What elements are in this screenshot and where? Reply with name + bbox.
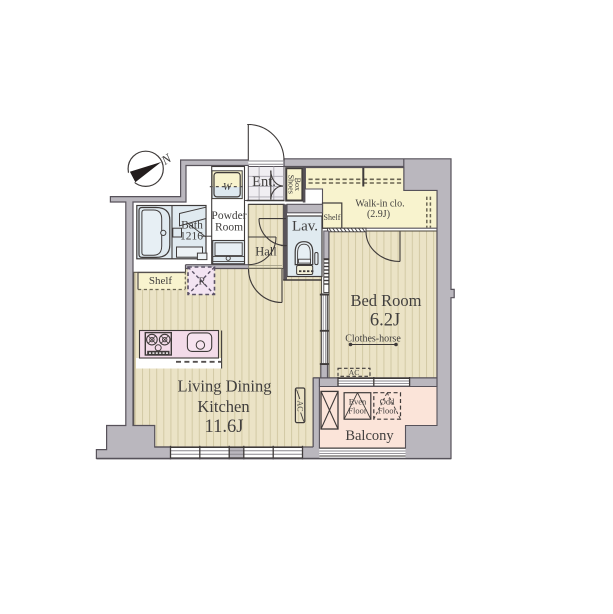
svg-text:Room: Room (215, 222, 243, 234)
svg-text:Balcony: Balcony (345, 428, 394, 444)
svg-text:Floor: Floor (378, 406, 397, 416)
svg-text:1216: 1216 (180, 231, 203, 243)
svg-text:W: W (223, 182, 233, 193)
svg-text:AC: AC (296, 400, 305, 411)
svg-text:11.6J: 11.6J (205, 417, 244, 437)
svg-text:Hall: Hall (255, 245, 277, 259)
svg-text:Walk-in clo.: Walk-in clo. (355, 199, 404, 210)
svg-text:Bed Room: Bed Room (350, 291, 421, 310)
svg-text:Powder: Powder (211, 210, 246, 222)
svg-text:6.2J: 6.2J (370, 311, 400, 331)
svg-text:Box: Box (293, 178, 302, 191)
svg-text:R: R (198, 277, 205, 288)
svg-text:Living Dining: Living Dining (178, 377, 272, 396)
svg-text:Floor: Floor (348, 406, 367, 416)
svg-text:Ent.: Ent. (252, 174, 276, 190)
svg-text:Lav.: Lav. (292, 219, 318, 235)
svg-text:Shelf: Shelf (324, 213, 341, 222)
svg-text:Kitchen: Kitchen (197, 397, 249, 416)
svg-text:Shelf: Shelf (149, 275, 173, 287)
svg-text:(2.9J): (2.9J) (367, 209, 390, 220)
svg-text:AC: AC (349, 368, 359, 377)
svg-text:Clothes-horse: Clothes-horse (345, 334, 401, 345)
